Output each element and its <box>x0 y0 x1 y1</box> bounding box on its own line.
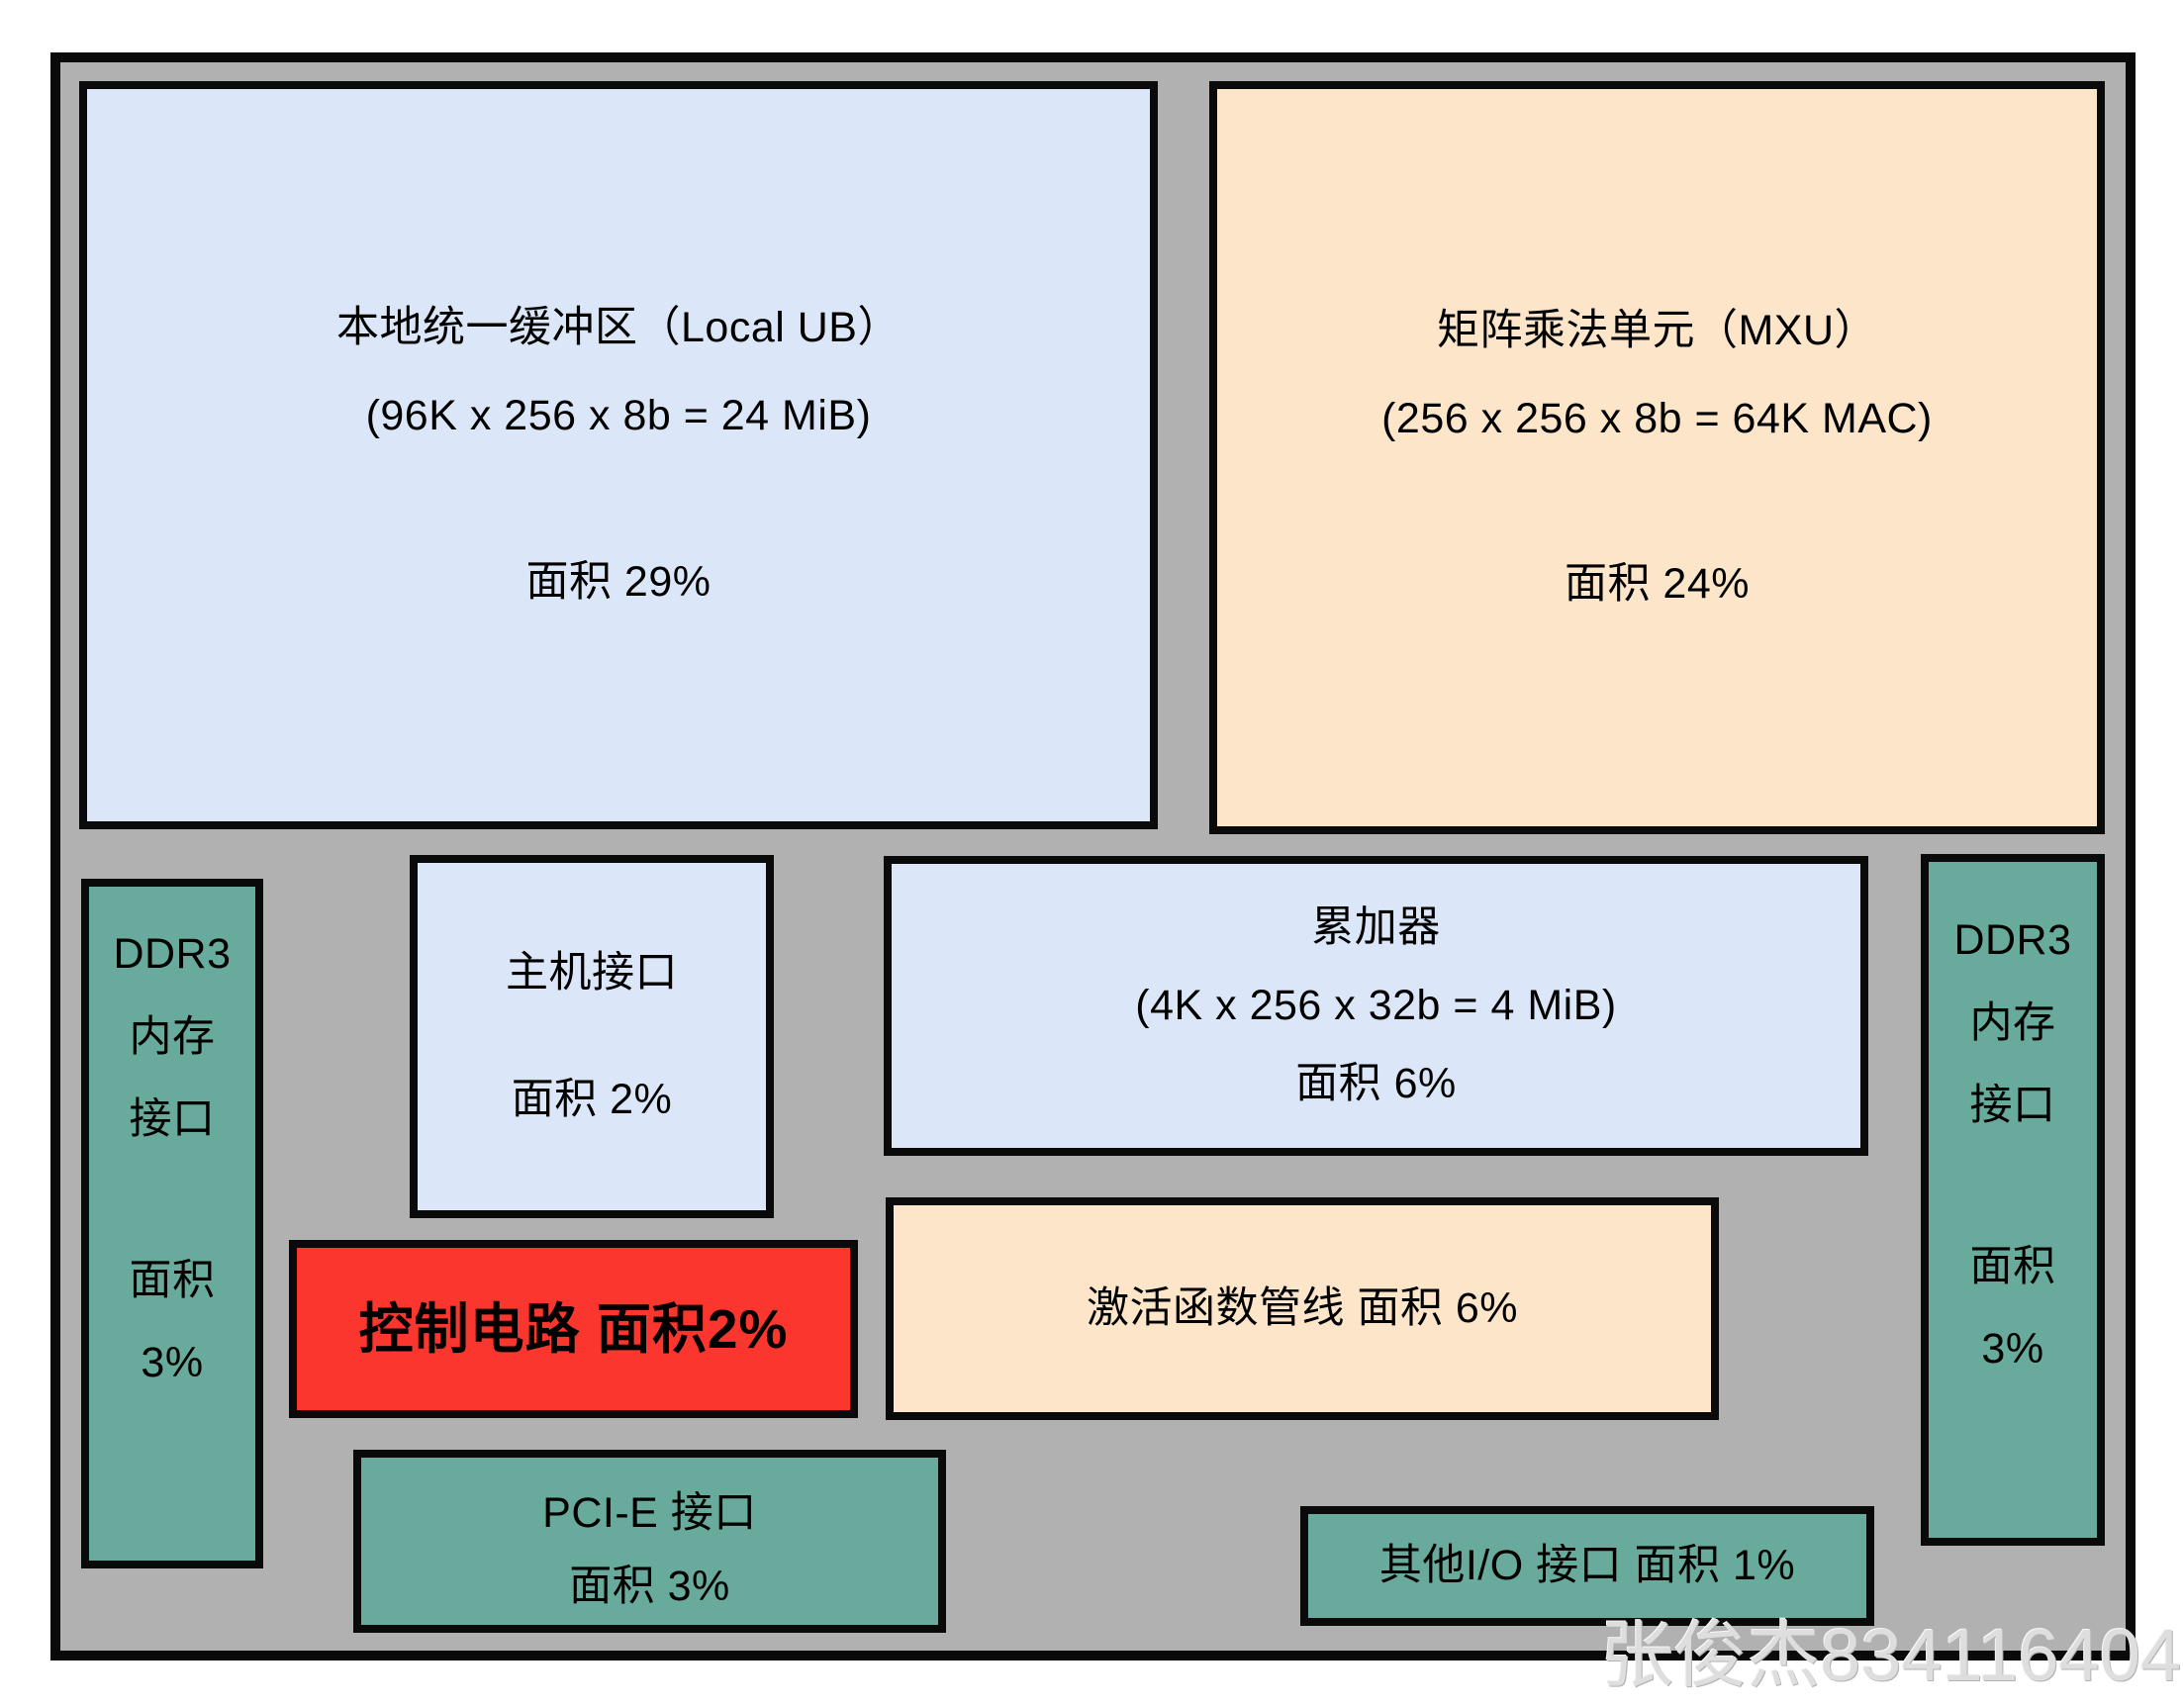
block-label: 内存 <box>130 1014 216 1061</box>
block-other-io-interface: 其他I/O 接口 面积 1% <box>1300 1506 1874 1626</box>
block-title: 矩阵乘法单元（MXU） <box>1437 308 1877 354</box>
block-accumulators: 累加器 (4K x 256 x 32b = 4 MiB) 面积 6% <box>884 856 1868 1156</box>
block-title: DDR3 <box>1953 917 2071 964</box>
block-area: 面积 29% <box>525 559 711 606</box>
block-matrix-multiply-unit: 矩阵乘法单元（MXU） (256 x 256 x 8b = 64K MAC) 面… <box>1209 81 2105 834</box>
block-area: 面积 24% <box>1565 561 1750 608</box>
block-control-logic: 控制电路 面积2% <box>289 1240 858 1418</box>
block-spec: (96K x 256 x 8b = 24 MiB) <box>366 393 872 439</box>
block-title: PCI-E 接口 <box>542 1490 757 1537</box>
block-local-unified-buffer: 本地统一缓冲区（Local UB） (96K x 256 x 8b = 24 M… <box>79 81 1158 829</box>
block-label: 其他I/O 接口 面积 1% <box>1379 1543 1795 1589</box>
block-label: 控制电路 面积2% <box>359 1299 789 1360</box>
block-spec: (4K x 256 x 32b = 4 MiB) <box>1135 983 1616 1029</box>
block-area: 面积 2% <box>512 1077 673 1123</box>
block-area: 面积 6% <box>1295 1061 1457 1107</box>
block-title: 本地统一缓冲区（Local UB） <box>336 305 901 351</box>
block-label: 接口 <box>130 1096 216 1143</box>
block-area: 面积 3% <box>569 1564 730 1610</box>
block-label: 内存 <box>1970 1000 2056 1047</box>
block-area-label: 面积 <box>1970 1244 2056 1290</box>
block-label: 接口 <box>1970 1083 2056 1129</box>
block-activation-pipeline: 激活函数管线 面积 6% <box>886 1197 1719 1420</box>
block-title: 累加器 <box>1311 904 1441 951</box>
block-area-value: 3% <box>1981 1326 2043 1373</box>
block-title: 主机接口 <box>506 950 678 996</box>
block-pcie-interface: PCI-E 接口 面积 3% <box>353 1450 946 1633</box>
block-ddr3-interface-left: DDR3 内存 接口 面积 3% <box>81 879 263 1568</box>
block-area-label: 面积 <box>130 1258 216 1304</box>
watermark-text: 张俊杰834116404 <box>1600 1617 2181 1694</box>
block-spec: (256 x 256 x 8b = 64K MAC) <box>1381 396 1933 442</box>
block-area-value: 3% <box>141 1340 203 1386</box>
block-title: DDR3 <box>113 931 231 978</box>
block-ddr3-interface-right: DDR3 内存 接口 面积 3% <box>1921 854 2105 1546</box>
block-label: 激活函数管线 面积 6% <box>1087 1285 1518 1332</box>
tpu-floorplan-diagram: 本地统一缓冲区（Local UB） (96K x 256 x 8b = 24 M… <box>0 0 2183 1708</box>
block-host-interface: 主机接口 面积 2% <box>410 855 774 1218</box>
